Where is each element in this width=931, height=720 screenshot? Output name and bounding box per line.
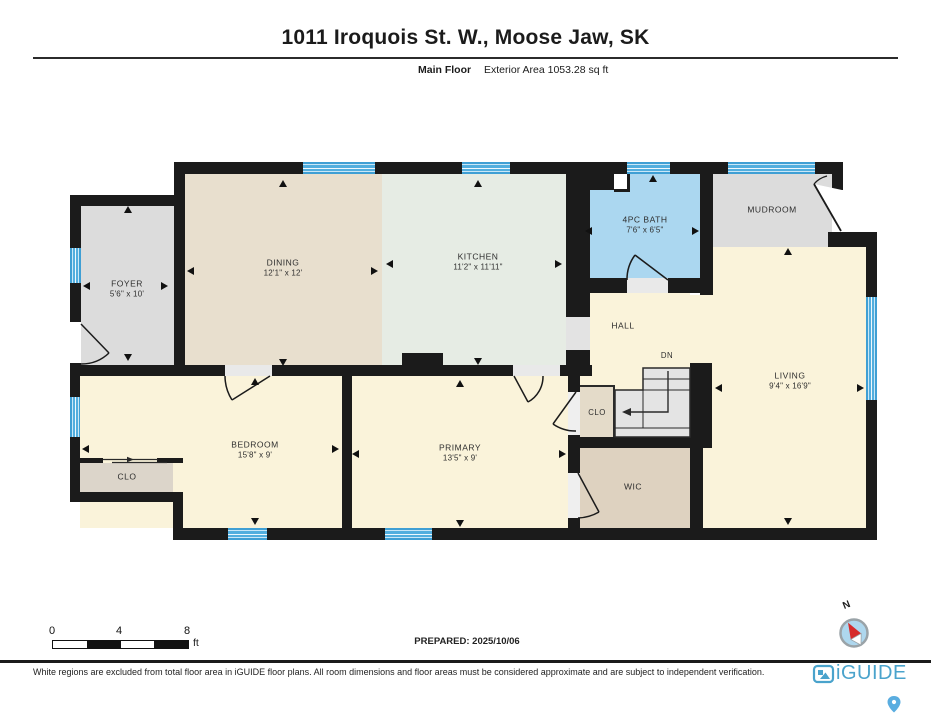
scale-tick-0: 0	[49, 625, 55, 637]
floor-label: Main Floor	[418, 64, 471, 76]
room-label-hall: HALL	[611, 320, 634, 331]
scale-tick-8: 8	[184, 625, 190, 637]
window	[627, 162, 670, 174]
door-opening	[225, 365, 272, 376]
door-opening	[627, 278, 668, 293]
room-label-foyer: FOYER 5'6" x 10'	[110, 278, 144, 299]
wall	[70, 195, 174, 206]
excluded-region	[614, 174, 630, 192]
wall	[70, 376, 80, 502]
window	[228, 528, 267, 540]
room-label-wic: WIC	[624, 481, 642, 492]
wall	[342, 376, 352, 528]
prepared-date: PREPARED: 2025/10/06	[414, 636, 519, 647]
window	[303, 162, 375, 174]
wall	[174, 162, 185, 376]
wall	[700, 162, 713, 295]
compass-north-label: N	[841, 599, 852, 612]
wall	[690, 448, 703, 528]
disclaimer-text: White regions are excluded from total fl…	[33, 667, 764, 677]
closet-hall-wall	[613, 385, 615, 437]
wall	[173, 492, 183, 540]
scale-tick-4: 4	[116, 625, 122, 637]
floor-subtitle: Main Floor Exterior Area 1053.28 sq ft	[418, 64, 608, 76]
room-label-mudroom: MUDROOM	[747, 204, 796, 215]
exterior-area-label: Exterior Area 1053.28 sq ft	[484, 64, 608, 76]
wall	[590, 174, 614, 190]
window	[866, 297, 877, 400]
window	[385, 528, 432, 540]
door-opening	[568, 473, 580, 518]
wall	[566, 162, 590, 317]
hall-living-opening	[690, 295, 712, 363]
window	[70, 397, 80, 437]
scale-unit: ft	[193, 637, 199, 649]
wall	[690, 363, 712, 440]
closet-hall-wall	[580, 385, 615, 387]
room-label-dining: DINING 12'1" x 12'	[264, 257, 303, 278]
window	[728, 162, 815, 174]
door-opening	[513, 365, 560, 376]
room-label-bath: 4PC BATH 7'6" x 6'5"	[623, 214, 668, 235]
compass-needle-icon	[843, 620, 866, 649]
wall	[566, 350, 590, 376]
wall	[70, 492, 183, 502]
iguide-logo-icon	[814, 666, 833, 682]
room-label-closet-bedroom: CLO	[118, 471, 137, 482]
window	[462, 162, 510, 174]
wall	[402, 353, 443, 376]
wic-right-strip	[703, 448, 712, 528]
compass-icon	[841, 620, 868, 649]
wall	[832, 162, 843, 190]
wall	[157, 458, 183, 463]
floorplan-page: 1011 Iroquois St. W., Moose Jaw, SK Main…	[0, 0, 931, 720]
room-bedroom	[80, 376, 342, 528]
room-label-primary: PRIMARY 13'5" x 9'	[439, 442, 481, 463]
door-opening	[568, 392, 580, 435]
room-label-stairs-dn: DN	[661, 351, 673, 361]
room-label-living: LIVING 9'4" x 16'9"	[769, 370, 811, 391]
door-opening	[566, 317, 590, 350]
footer-divider	[0, 660, 931, 663]
wall	[174, 528, 877, 540]
location-pin-icon	[888, 696, 901, 713]
room-label-closet-hall: CLO	[588, 408, 606, 418]
scale-bar	[52, 640, 189, 649]
door-opening	[70, 322, 81, 363]
room-label-bedroom: BEDROOM 15'8" x 9'	[231, 439, 278, 460]
room-label-kitchen: KITCHEN 11'2" x 11'11"	[453, 251, 502, 272]
wall	[80, 458, 103, 463]
wall	[568, 437, 712, 448]
window	[70, 248, 81, 283]
page-title: 1011 Iroquois St. W., Moose Jaw, SK	[0, 26, 931, 50]
title-divider	[33, 57, 898, 59]
iguide-brand-text: iGUIDE	[836, 662, 907, 685]
